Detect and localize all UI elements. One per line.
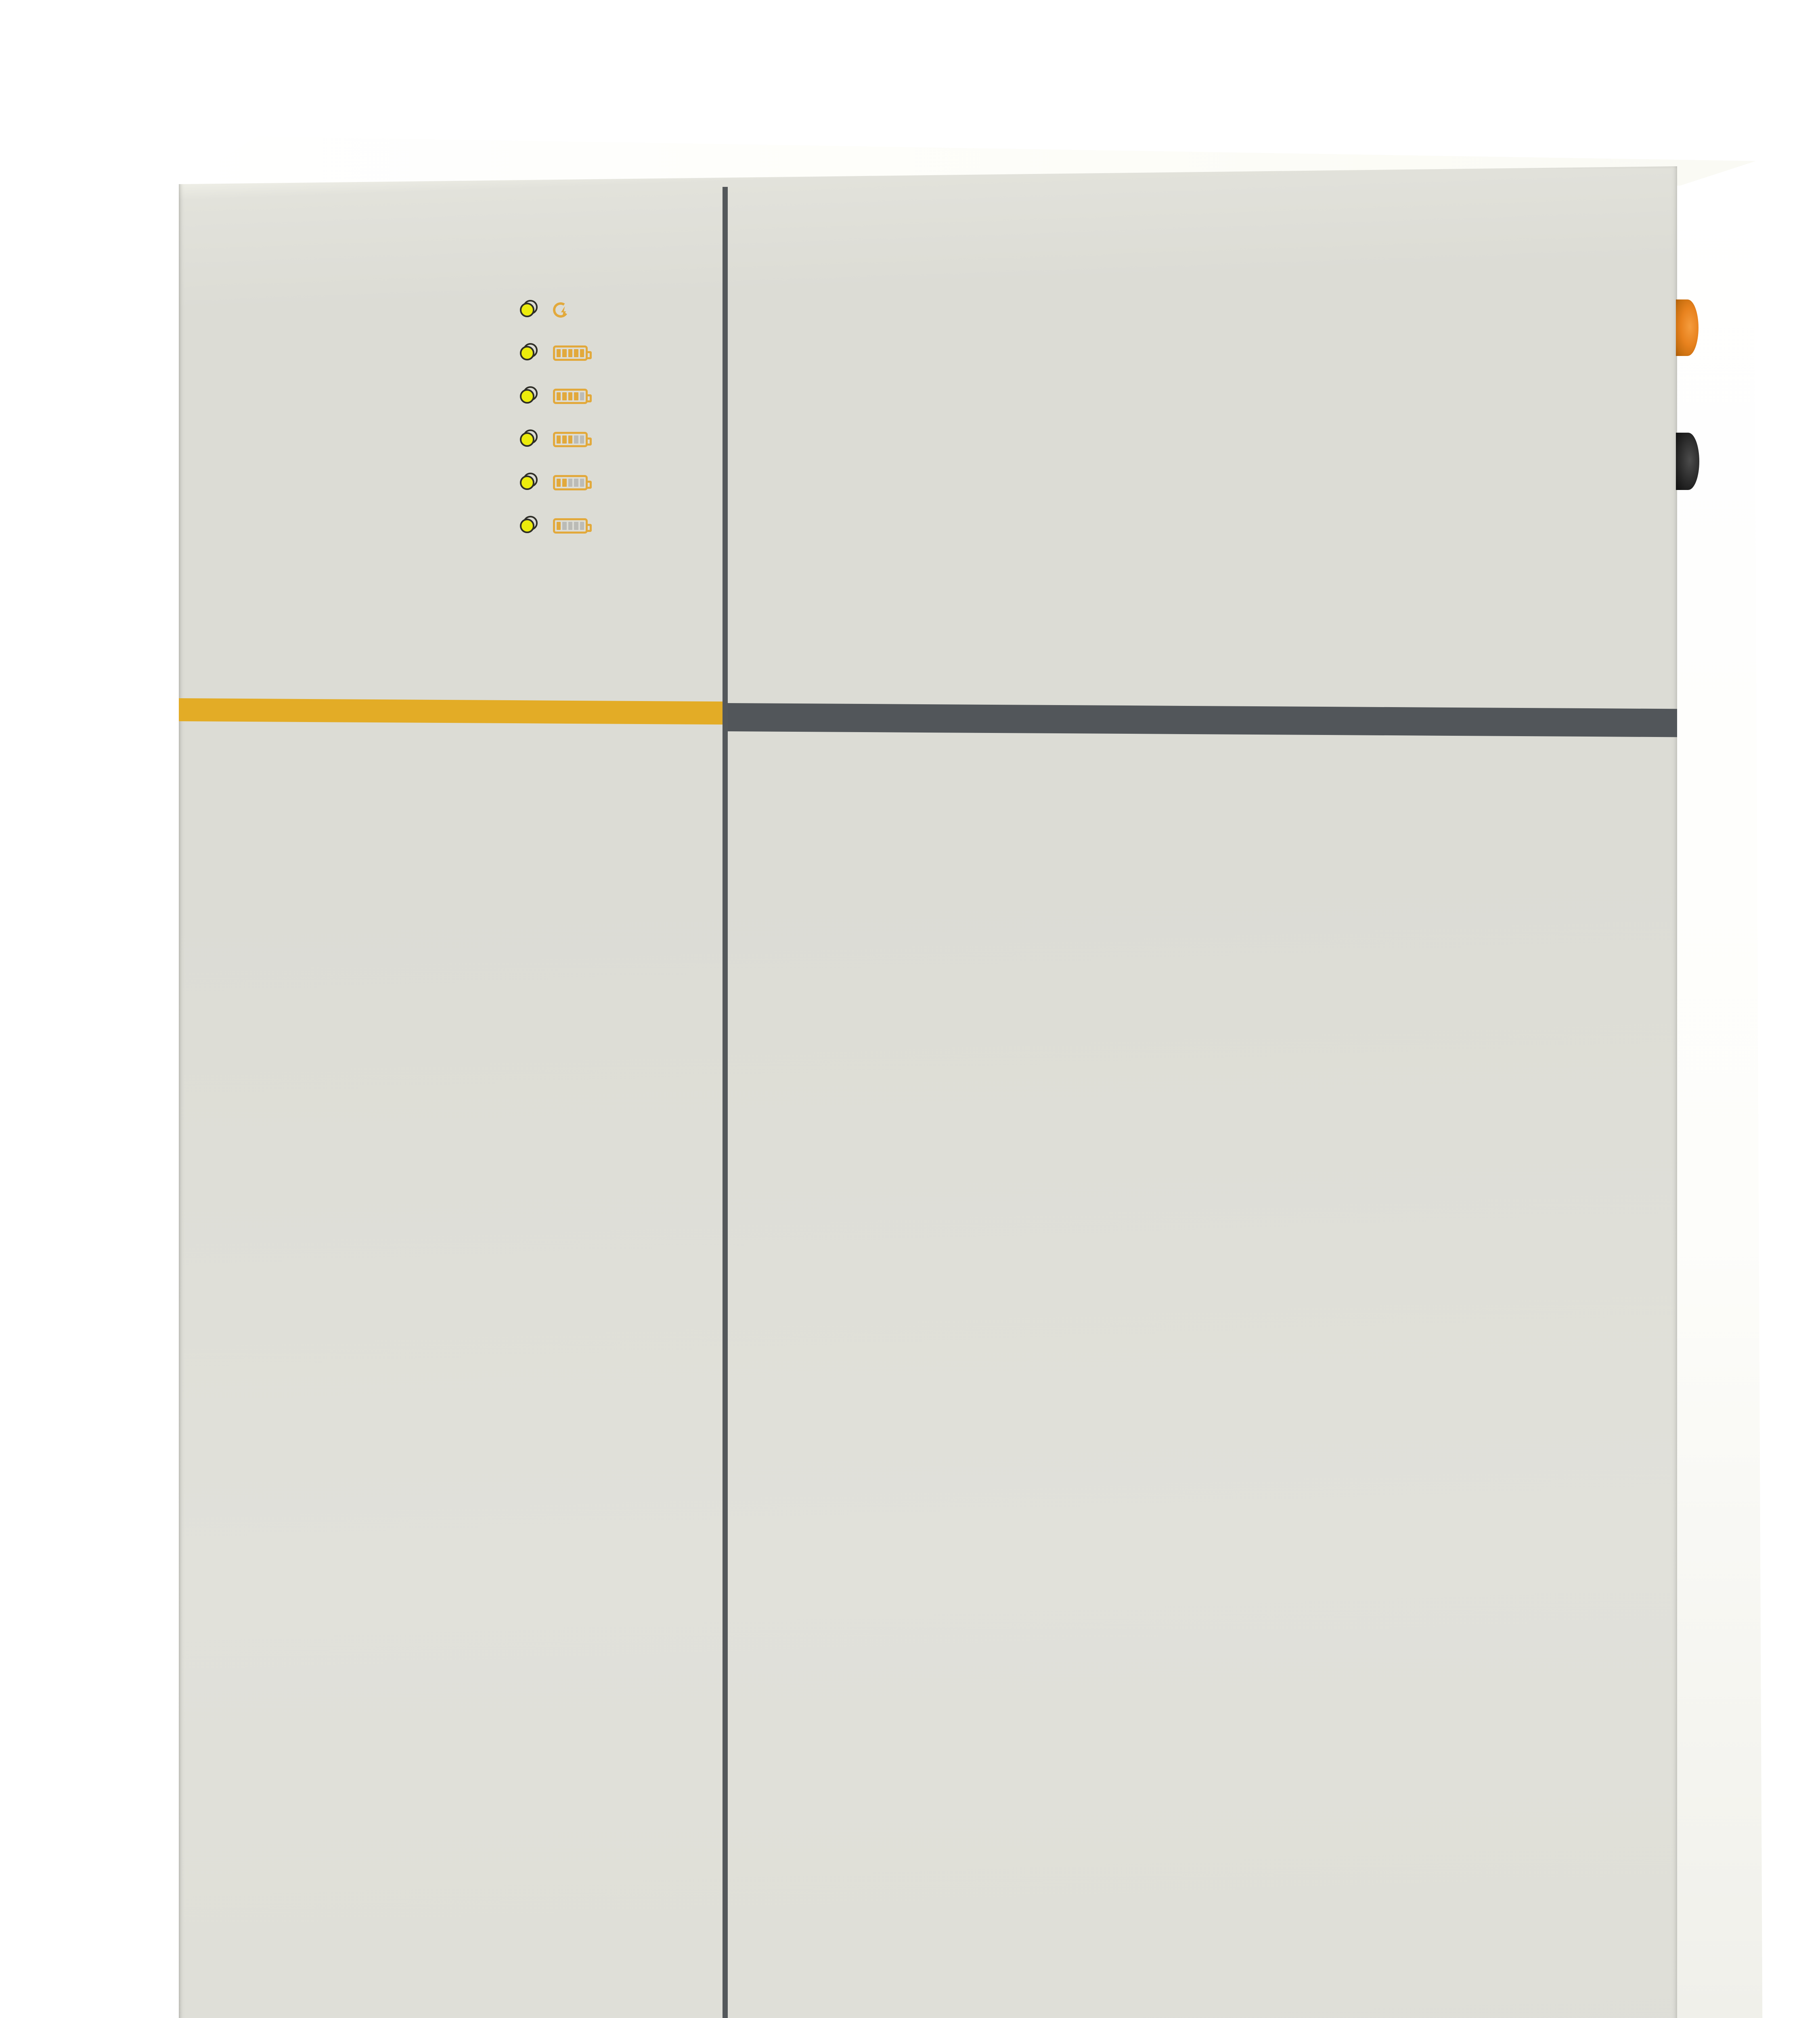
battery-segment — [562, 349, 566, 357]
battery-segment — [568, 392, 572, 400]
led-indicator — [520, 389, 534, 404]
battery-level-icon — [553, 389, 588, 404]
battery-segment — [580, 522, 584, 530]
battery-segment — [580, 392, 584, 400]
led-indicator — [520, 519, 534, 533]
battery-segment — [580, 435, 584, 444]
cabinet-front-panel: TRIPLE POWER — [179, 166, 1677, 2018]
battery-segment — [574, 435, 578, 444]
battery-segment — [574, 479, 578, 487]
indicator-row — [520, 432, 588, 447]
indicator-row — [520, 519, 588, 533]
indicator-row — [520, 389, 588, 404]
led-indicator — [520, 432, 534, 447]
battery-segment — [557, 522, 561, 530]
indicator-panel — [520, 303, 588, 533]
battery-segment — [568, 479, 572, 487]
led-indicator — [520, 303, 534, 317]
battery-segment — [568, 522, 572, 530]
orange-connector-knob — [1676, 299, 1699, 356]
indicator-row — [520, 346, 588, 360]
battery-level-icon — [553, 518, 588, 534]
battery-segment — [562, 392, 566, 400]
battery-segment — [557, 479, 561, 487]
battery-segment — [568, 435, 572, 444]
battery-segment — [562, 522, 566, 530]
battery-segment — [574, 349, 578, 357]
charging-icon — [551, 301, 570, 319]
battery-level-icon — [553, 432, 588, 447]
battery-segment — [580, 349, 584, 357]
lightning-bolt-icon — [559, 306, 568, 318]
indicator-row — [520, 475, 588, 490]
battery-segment — [574, 522, 578, 530]
indicator-row — [520, 303, 588, 317]
battery-level-icon — [553, 475, 588, 490]
led-indicator — [520, 475, 534, 490]
yellow-accent-band — [179, 698, 728, 724]
battery-segment — [574, 392, 578, 400]
battery-segment — [568, 349, 572, 357]
battery-segment — [562, 435, 566, 444]
battery-segment — [557, 349, 561, 357]
panel-divider-line — [723, 187, 728, 2018]
dark-accent-band — [728, 703, 1677, 737]
battery-segment — [580, 479, 584, 487]
battery-level-icon — [553, 345, 588, 361]
battery-segment — [557, 435, 561, 444]
battery-segment — [557, 392, 561, 400]
black-connector-knob — [1676, 433, 1699, 490]
led-indicator — [520, 346, 534, 360]
battery-segment — [562, 479, 566, 487]
